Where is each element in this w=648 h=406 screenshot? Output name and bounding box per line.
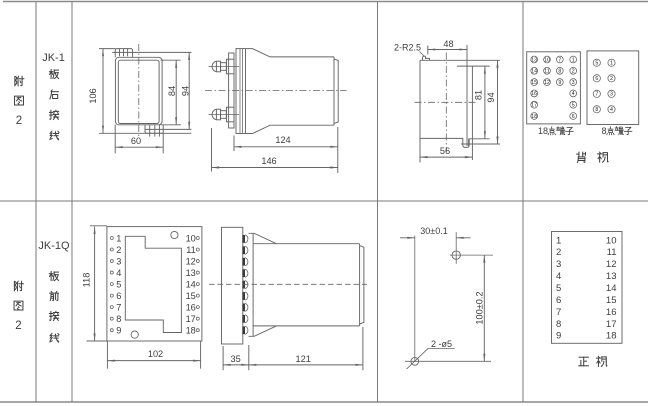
svg-text:5: 5 <box>116 279 121 289</box>
svg-text:8: 8 <box>556 319 561 330</box>
svg-text:5: 5 <box>556 283 561 294</box>
svg-text:6: 6 <box>116 291 121 301</box>
svg-text:15: 15 <box>606 295 617 306</box>
svg-text:8: 8 <box>601 126 606 136</box>
svg-text:13: 13 <box>606 271 617 282</box>
svg-text:18: 18 <box>538 126 548 136</box>
svg-text:30±0.1: 30±0.1 <box>420 226 447 236</box>
svg-text:35: 35 <box>230 354 240 364</box>
svg-text:2 -ø5: 2 -ø5 <box>431 339 452 349</box>
svg-text:JK-1Q: JK-1Q <box>38 240 70 252</box>
svg-text:14: 14 <box>606 283 617 294</box>
svg-text:10: 10 <box>544 57 550 63</box>
svg-text:15: 15 <box>531 80 537 86</box>
svg-text:2: 2 <box>15 320 21 332</box>
svg-text:11: 11 <box>607 247 617 258</box>
svg-text:146: 146 <box>261 156 276 166</box>
svg-text:81: 81 <box>474 90 484 100</box>
svg-text:17: 17 <box>531 103 537 109</box>
svg-text:2-R2.5: 2-R2.5 <box>394 43 421 53</box>
svg-text:60: 60 <box>131 136 141 146</box>
svg-text:18: 18 <box>186 326 196 336</box>
svg-text:6: 6 <box>556 295 561 306</box>
svg-text:1: 1 <box>556 235 561 246</box>
svg-text:17: 17 <box>186 314 196 324</box>
svg-text:5: 5 <box>595 61 598 67</box>
svg-text:94: 94 <box>181 86 191 96</box>
svg-text:106: 106 <box>88 88 98 103</box>
svg-text:12: 12 <box>186 256 196 266</box>
svg-text:6: 6 <box>572 114 575 120</box>
svg-text:15: 15 <box>186 291 196 301</box>
svg-text:84: 84 <box>167 86 177 96</box>
svg-text:18: 18 <box>606 331 617 342</box>
svg-text:1: 1 <box>572 57 575 63</box>
svg-text:10: 10 <box>606 235 617 246</box>
svg-text:2: 2 <box>610 76 613 82</box>
svg-text:4: 4 <box>610 107 613 113</box>
svg-text:94: 94 <box>486 92 496 102</box>
svg-text:3: 3 <box>116 256 121 266</box>
svg-text:4: 4 <box>556 271 561 282</box>
svg-text:14: 14 <box>186 279 196 289</box>
svg-text:8: 8 <box>116 314 121 324</box>
svg-text:6: 6 <box>595 76 598 82</box>
svg-text:17: 17 <box>606 319 617 330</box>
svg-text:4: 4 <box>572 91 575 97</box>
svg-text:7: 7 <box>595 92 598 98</box>
svg-text:2: 2 <box>572 69 575 75</box>
svg-text:7: 7 <box>116 302 121 312</box>
svg-text:18: 18 <box>531 114 537 120</box>
svg-text:9: 9 <box>556 331 561 342</box>
svg-text:14: 14 <box>531 69 537 75</box>
svg-text:16: 16 <box>606 307 617 318</box>
svg-text:3: 3 <box>610 92 613 98</box>
svg-text:13: 13 <box>531 57 537 63</box>
svg-text:8: 8 <box>595 107 598 113</box>
svg-text:8: 8 <box>558 69 561 75</box>
svg-text:4: 4 <box>116 268 121 278</box>
svg-text:100±0.2: 100±0.2 <box>474 291 484 324</box>
svg-text:16: 16 <box>531 91 537 97</box>
svg-text:7: 7 <box>556 307 561 318</box>
svg-text:3: 3 <box>572 80 575 86</box>
svg-text:JK-1: JK-1 <box>42 52 65 64</box>
svg-text:12: 12 <box>544 80 550 86</box>
svg-text:124: 124 <box>275 135 290 145</box>
svg-text:10: 10 <box>186 233 196 243</box>
svg-text:9: 9 <box>116 326 121 336</box>
svg-text:118: 118 <box>82 273 92 288</box>
svg-text:102: 102 <box>148 349 163 359</box>
svg-text:5: 5 <box>572 103 575 109</box>
svg-text:56: 56 <box>440 146 450 156</box>
svg-text:121: 121 <box>296 354 311 364</box>
svg-text:2: 2 <box>556 247 561 258</box>
svg-text:2: 2 <box>116 245 121 255</box>
svg-text:1: 1 <box>116 233 121 243</box>
svg-text:11: 11 <box>186 245 196 255</box>
svg-text:13: 13 <box>186 268 196 278</box>
svg-text:11: 11 <box>544 69 549 75</box>
svg-text:16: 16 <box>186 302 196 312</box>
svg-text:12: 12 <box>606 259 617 270</box>
svg-text:9: 9 <box>558 80 561 86</box>
svg-text:2: 2 <box>16 115 22 127</box>
svg-text:1: 1 <box>610 61 613 67</box>
svg-text:48: 48 <box>443 39 453 49</box>
svg-text:3: 3 <box>556 259 561 270</box>
svg-text:7: 7 <box>558 57 561 63</box>
